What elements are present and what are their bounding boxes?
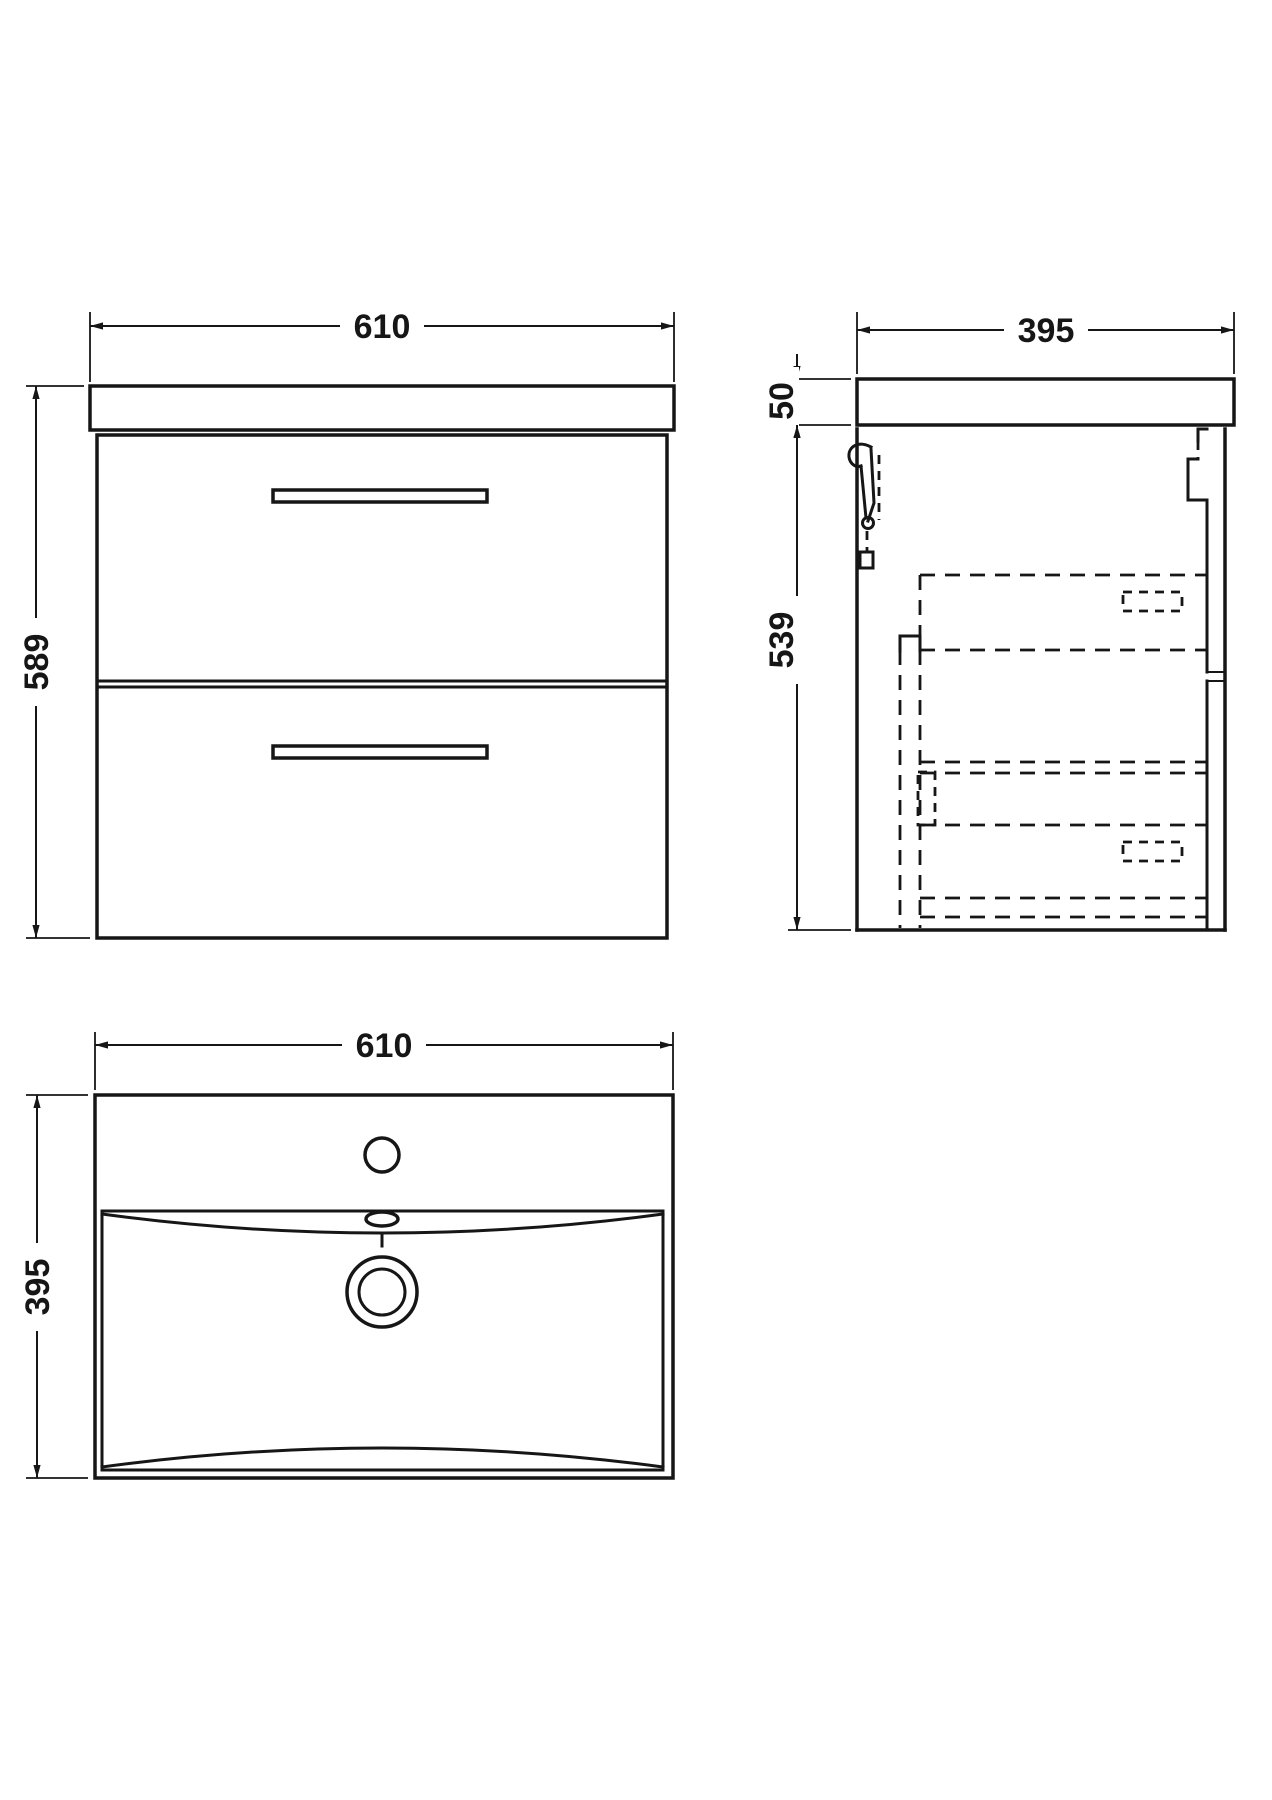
hidden-drawer-lines: [900, 575, 1207, 928]
basin-front-slope: [102, 1448, 663, 1467]
front-height-dimension: 589: [18, 386, 90, 938]
front-step-profile: [1188, 459, 1207, 500]
plan-width-label: 610: [356, 1027, 413, 1065]
basin-bowl: [102, 1211, 663, 1470]
front-worktop: [90, 386, 674, 430]
wall-bracket: [849, 444, 879, 568]
bracket-arm: [868, 449, 874, 521]
overflow-hole: [366, 1212, 398, 1226]
bracket-hook: [849, 444, 871, 466]
bracket-arm: [861, 466, 866, 518]
plan-width-dimension: 610: [95, 1027, 673, 1090]
plan-depth-dimension: 395: [19, 1095, 88, 1478]
bottom-drawer-handle: [273, 746, 487, 758]
side-cabinet-label: 539: [763, 612, 801, 669]
top-drawer-handle: [273, 490, 487, 502]
side-worktop-dimension: 50: [763, 354, 851, 450]
bracket-foot: [860, 552, 873, 568]
technical-drawing: 610 589: [0, 0, 1272, 1800]
front-step-profile: [1198, 429, 1207, 441]
plan-view: 610 395: [19, 1027, 673, 1478]
front-width-dimension: 610: [90, 308, 674, 382]
top-drawer-handle-hidden: [1123, 592, 1182, 611]
divider-rail-profile: [900, 636, 920, 651]
front-view: 610 589: [18, 308, 674, 938]
bottom-drawer-handle-hidden: [1123, 842, 1182, 861]
front-width-label: 610: [354, 308, 411, 346]
plan-depth-label: 395: [19, 1259, 57, 1316]
side-view: 395 50 539: [763, 312, 1234, 930]
side-cabinet-dimension: 539: [763, 425, 851, 930]
side-depth-label: 395: [1018, 312, 1075, 350]
side-worktop-label: 50: [763, 382, 801, 420]
front-height-label: 589: [18, 634, 56, 691]
drawing-sheet: 610 589: [0, 0, 1272, 1800]
side-depth-dimension: 395: [857, 312, 1234, 374]
tap-hole: [365, 1138, 399, 1172]
side-worktop: [857, 379, 1234, 425]
